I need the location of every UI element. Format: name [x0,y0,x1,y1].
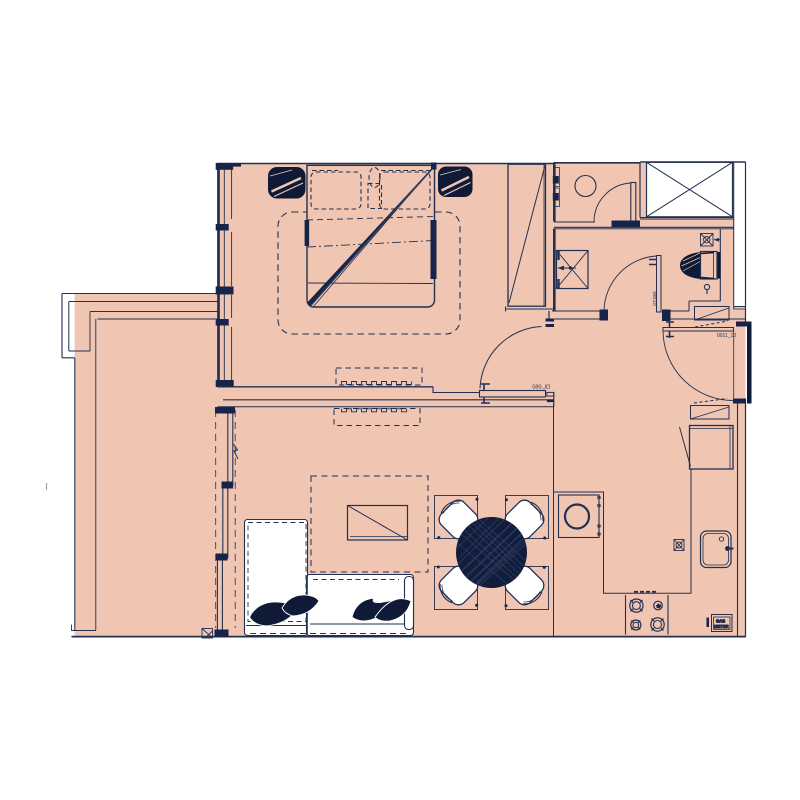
svg-text:0011_10: 0011_10 [717,333,736,339]
svg-text:METER: METER [714,624,729,629]
svg-text:OT.060: OT.060 [652,291,657,306]
svg-text:GAS: GAS [716,619,725,624]
svg-text:DL.060: DL.060 [532,385,550,391]
